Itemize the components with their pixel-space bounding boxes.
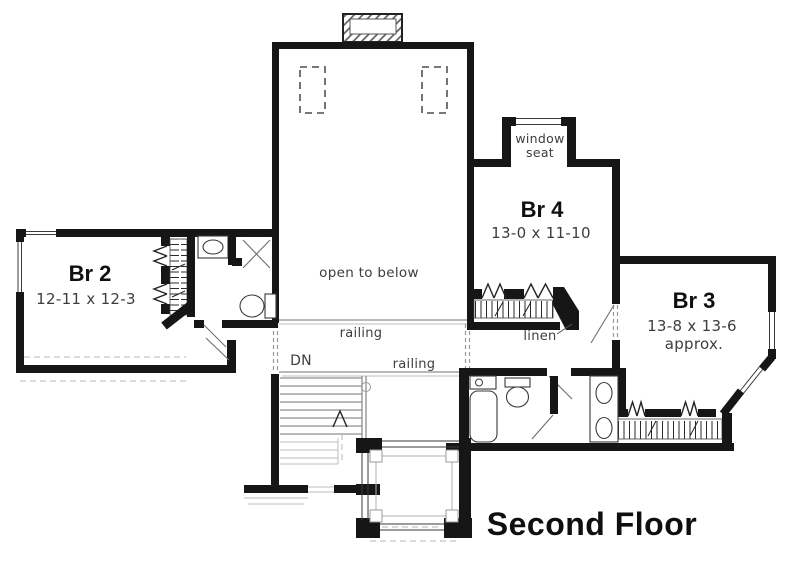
br4-dims: 13-0 x 11-10 <box>491 224 591 242</box>
bifold-door-mark <box>154 246 167 256</box>
bifold-door-mark <box>154 294 167 304</box>
bay-wall <box>723 391 741 414</box>
toilet <box>507 387 529 407</box>
closet-rod <box>616 419 722 439</box>
bifold-door-mark <box>482 284 494 298</box>
bifold-door-mark <box>690 402 698 416</box>
door-swing <box>204 325 226 347</box>
window <box>26 229 56 237</box>
porch-inner-outline <box>376 456 452 516</box>
floor-plan-page: open to below railing railing <box>0 0 800 563</box>
open-to-below-label: open to below <box>319 265 419 281</box>
bay-wall <box>762 357 772 369</box>
window <box>16 242 24 292</box>
linen-label: linen <box>523 329 556 344</box>
bifold-door-mark <box>637 402 645 416</box>
pilaster <box>446 450 458 462</box>
lower-railing-label: railing <box>393 357 436 372</box>
door-swing <box>206 338 229 360</box>
toilet <box>240 295 264 317</box>
bay-window <box>740 366 760 391</box>
door-swing <box>532 415 553 439</box>
sink <box>203 240 223 254</box>
upper-railing-label: railing <box>340 326 383 341</box>
pilaster <box>370 450 382 462</box>
bifold-door-mark <box>538 284 553 298</box>
bifold-door-mark <box>628 402 637 416</box>
chimney <box>343 14 402 42</box>
pilaster <box>370 510 382 522</box>
bifold-door-mark <box>524 284 538 298</box>
bedroom-2: Br 2 12-11 x 12-3 <box>16 229 278 381</box>
toilet-tank <box>505 378 530 387</box>
vanity-sink <box>596 383 612 404</box>
door-swing <box>591 305 614 343</box>
bifold-door-mark <box>154 256 167 266</box>
br3-label: Br 3 <box>673 288 716 313</box>
closet-rod <box>474 300 553 318</box>
bedroom-3: Br 3 13-8 x 13-6 approx. <box>612 256 776 414</box>
bifold-door-mark <box>681 402 690 416</box>
window-seat: window seat <box>467 117 620 167</box>
closet-rod <box>170 239 187 315</box>
bifold-door-mark <box>154 284 167 294</box>
toilet-tank <box>265 294 276 318</box>
br2-dims: 12-11 x 12-3 <box>36 290 136 308</box>
br2-bath <box>194 236 278 347</box>
bathtub <box>470 391 497 442</box>
pilaster <box>446 510 458 522</box>
window-seat-label-2: seat <box>526 145 554 160</box>
br2-closet <box>154 237 195 326</box>
ceiling-feature <box>300 67 325 113</box>
br3-note: approx. <box>665 335 724 353</box>
main-bath <box>459 368 626 443</box>
br4-label: Br 4 <box>521 197 565 222</box>
br4-closet: linen <box>467 284 579 344</box>
floor-title: Second Floor <box>487 506 697 542</box>
br3-dims: 13-8 x 13-6 <box>647 317 737 335</box>
down-label: DN <box>290 353 312 369</box>
great-room: open to below <box>272 42 474 330</box>
stairs-up-arrow <box>333 411 347 427</box>
floor-plan: open to below railing railing <box>0 0 800 563</box>
bay-window <box>743 369 763 394</box>
entry-porch <box>356 438 472 541</box>
window-seat-label-1: window <box>515 131 564 146</box>
vanity-sink <box>596 418 612 439</box>
ceiling-feature <box>422 67 447 113</box>
br2-label: Br 2 <box>69 261 112 286</box>
